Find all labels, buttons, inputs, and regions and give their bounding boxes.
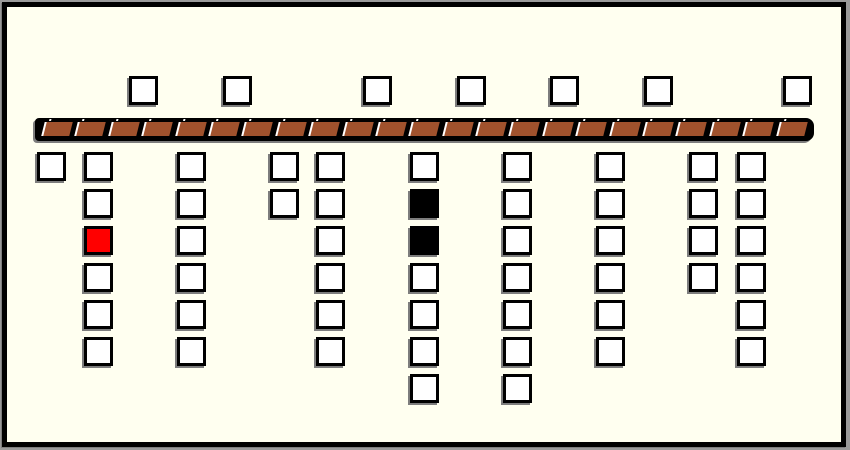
column-3-cell-5-white[interactable] — [177, 300, 206, 329]
column-3-cell-1-white[interactable] — [177, 152, 206, 181]
rail-segment — [776, 122, 808, 136]
column-10-cell-2-white[interactable] — [737, 189, 766, 218]
rail-segment — [208, 122, 240, 136]
column-2-cell-3-red[interactable] — [84, 226, 113, 255]
column-6-cell-7-white[interactable] — [410, 374, 439, 403]
column-2-cell-6-white[interactable] — [84, 337, 113, 366]
top-square-1[interactable] — [129, 76, 158, 105]
rail-segment — [175, 122, 207, 136]
column-9-cell-3-white[interactable] — [689, 226, 718, 255]
column-8-cell-6-white[interactable] — [596, 337, 625, 366]
column-2-cell-5-white[interactable] — [84, 300, 113, 329]
column-4-cell-1-white[interactable] — [270, 152, 299, 181]
column-7-cell-4-white[interactable] — [503, 263, 532, 292]
rail-segment — [676, 122, 708, 136]
rail-segment — [742, 122, 774, 136]
column-3-cell-6-white[interactable] — [177, 337, 206, 366]
rail-segment — [375, 122, 407, 136]
column-5-cell-4-white[interactable] — [316, 263, 345, 292]
top-square-5[interactable] — [550, 76, 579, 105]
column-2-cell-2-white[interactable] — [84, 189, 113, 218]
column-10-cell-6-white[interactable] — [737, 337, 766, 366]
column-6-cell-2-black[interactable] — [410, 189, 439, 218]
column-10-cell-3-white[interactable] — [737, 226, 766, 255]
column-5-cell-5-white[interactable] — [316, 300, 345, 329]
column-8-cell-3-white[interactable] — [596, 226, 625, 255]
column-10-cell-1-white[interactable] — [737, 152, 766, 181]
column-6-cell-3-black[interactable] — [410, 226, 439, 255]
rail-segment — [576, 122, 608, 136]
column-6-cell-4-white[interactable] — [410, 263, 439, 292]
diagram-canvas — [0, 0, 850, 450]
column-8-cell-2-white[interactable] — [596, 189, 625, 218]
rail-segment — [141, 122, 173, 136]
column-3-cell-3-white[interactable] — [177, 226, 206, 255]
column-9-cell-1-white[interactable] — [689, 152, 718, 181]
column-5-cell-3-white[interactable] — [316, 226, 345, 255]
top-square-7[interactable] — [783, 76, 812, 105]
top-square-6[interactable] — [644, 76, 673, 105]
column-5-cell-1-white[interactable] — [316, 152, 345, 181]
column-9-cell-2-white[interactable] — [689, 189, 718, 218]
rail-segment — [509, 122, 541, 136]
column-2-cell-4-white[interactable] — [84, 263, 113, 292]
rail-segment — [308, 122, 340, 136]
rail-segment — [609, 122, 641, 136]
column-7-cell-5-white[interactable] — [503, 300, 532, 329]
rail-segment — [275, 122, 307, 136]
rail-segment — [242, 122, 274, 136]
column-8-cell-1-white[interactable] — [596, 152, 625, 181]
column-5-cell-6-white[interactable] — [316, 337, 345, 366]
column-6-cell-5-white[interactable] — [410, 300, 439, 329]
column-2-cell-1-white[interactable] — [84, 152, 113, 181]
column-8-cell-5-white[interactable] — [596, 300, 625, 329]
column-10-cell-5-white[interactable] — [737, 300, 766, 329]
top-square-4[interactable] — [457, 76, 486, 105]
rail-segment — [542, 122, 574, 136]
top-square-2[interactable] — [223, 76, 252, 105]
rail-segment — [442, 122, 474, 136]
rail-segment — [709, 122, 741, 136]
column-4-cell-2-white[interactable] — [270, 189, 299, 218]
top-square-3[interactable] — [363, 76, 392, 105]
rail-segment — [409, 122, 441, 136]
column-7-cell-1-white[interactable] — [503, 152, 532, 181]
column-5-cell-2-white[interactable] — [316, 189, 345, 218]
column-7-cell-6-white[interactable] — [503, 337, 532, 366]
column-7-cell-7-white[interactable] — [503, 374, 532, 403]
rail-segment — [75, 122, 107, 136]
column-1-cell-1-white[interactable] — [37, 152, 66, 181]
column-6-cell-1-white[interactable] — [410, 152, 439, 181]
rail-segment — [342, 122, 374, 136]
rail-segment — [642, 122, 674, 136]
column-6-cell-6-white[interactable] — [410, 337, 439, 366]
rail-segment — [108, 122, 140, 136]
column-8-cell-4-white[interactable] — [596, 263, 625, 292]
column-10-cell-4-white[interactable] — [737, 263, 766, 292]
column-7-cell-3-white[interactable] — [503, 226, 532, 255]
rail-segment — [475, 122, 507, 136]
column-9-cell-4-white[interactable] — [689, 263, 718, 292]
column-7-cell-2-white[interactable] — [503, 189, 532, 218]
rail-segment — [41, 122, 73, 136]
column-3-cell-4-white[interactable] — [177, 263, 206, 292]
column-3-cell-2-white[interactable] — [177, 189, 206, 218]
striped-rail — [35, 118, 814, 141]
